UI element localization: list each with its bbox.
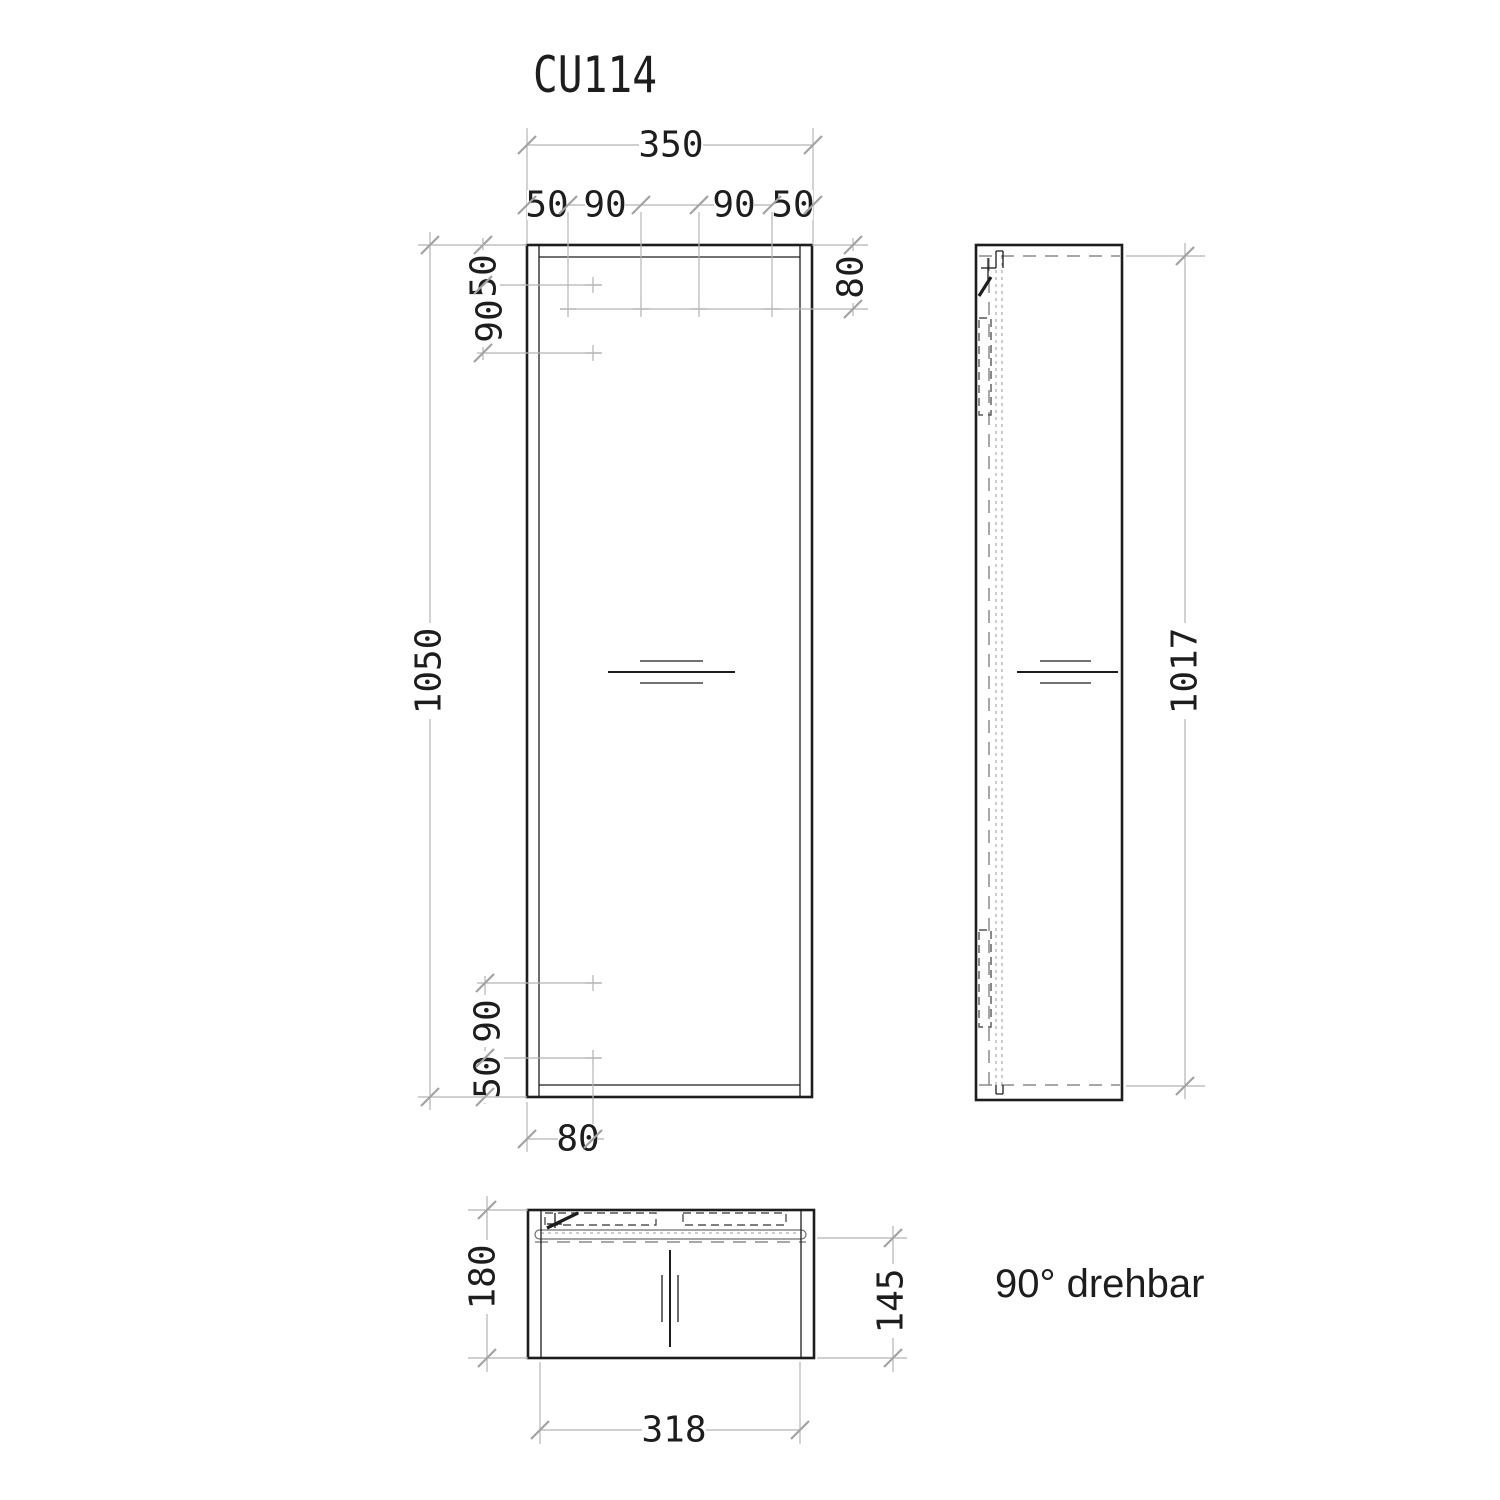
drawing-title: CU114: [533, 46, 657, 104]
dim-top-door-to-back-label: 145: [871, 1268, 912, 1333]
dim-front-hole-chain: 50 90 90 50: [518, 185, 822, 302]
dim-top-door-to-back: 145: [817, 1226, 912, 1372]
dim-side-door-height: 1017: [1126, 243, 1206, 1099]
dim-side-bottom-offset-label: 50: [468, 1055, 509, 1098]
top-hinge-plate-right: [683, 1213, 786, 1225]
dim-hinge-spacing-left-label: 90: [583, 185, 626, 226]
side-door-bottom-cap: [996, 1085, 1003, 1094]
dim-front-height: 1050: [409, 232, 528, 1110]
dim-top-depth: 180: [463, 1196, 529, 1372]
drawing-page: CU114 350 50 90: [0, 0, 1500, 1500]
top-center-mark: [662, 1250, 678, 1347]
dim-side-top-spacing-label: 90: [470, 299, 511, 342]
top-door-profile: [535, 1230, 806, 1239]
side-center-mark: [1017, 661, 1118, 683]
side-view: [976, 245, 1122, 1100]
dim-front-left-top-chain: 50 90: [464, 236, 603, 362]
dim-front-height-label: 1050: [409, 628, 450, 715]
dim-top-door-width-label: 318: [641, 1410, 706, 1451]
front-center-mark: [608, 661, 735, 683]
dim-top-door-width: 318: [531, 1362, 809, 1451]
dim-front-left-bottom-chain: 90 50: [468, 974, 603, 1106]
rotation-note: 90° drehbar: [995, 1262, 1204, 1306]
dim-top-row-depth-label: 80: [831, 255, 872, 298]
dim-front-total-width-label: 350: [638, 125, 703, 166]
dim-hinge-offset-right-label: 50: [771, 185, 814, 226]
front-view: [527, 245, 812, 1097]
dim-side-bottom-spacing-label: 90: [468, 999, 509, 1042]
dim-front-top-row-depth: 80: [560, 236, 872, 318]
dim-top-depth-label: 180: [463, 1244, 504, 1309]
top-view: [528, 1210, 814, 1358]
top-hinge-plate-left: [545, 1213, 656, 1225]
dim-front-hole-column-offset: 80: [518, 1066, 604, 1160]
dim-hinge-offset-left-label: 50: [525, 185, 568, 226]
side-hinge-symbol: [979, 258, 996, 296]
dim-side-top-offset-label: 50: [464, 254, 505, 297]
technical-drawing-canvas: CU114 350 50 90: [0, 0, 1500, 1500]
top-hinge-symbol: [547, 1213, 578, 1228]
dim-side-door-height-label: 1017: [1165, 628, 1206, 715]
dim-hinge-spacing-right-label: 90: [712, 185, 755, 226]
